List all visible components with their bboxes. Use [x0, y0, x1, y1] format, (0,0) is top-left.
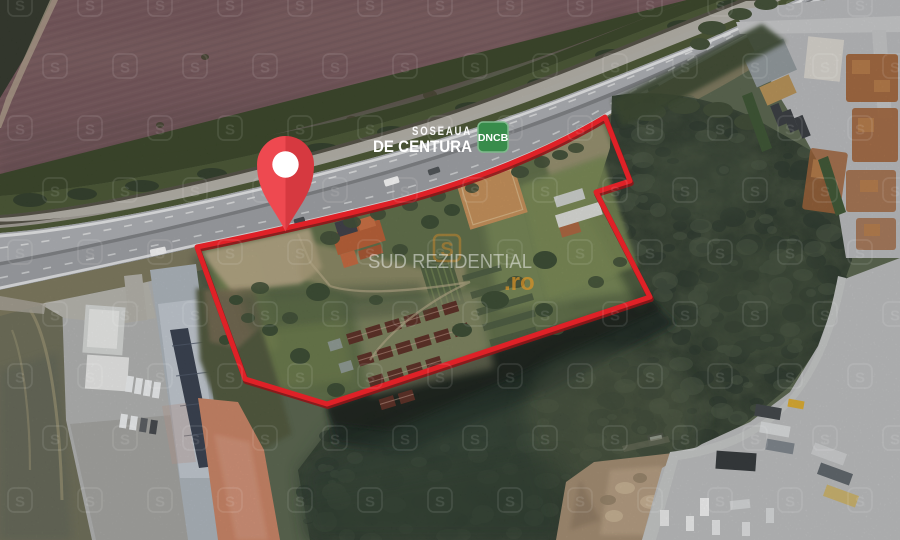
svg-text:S: S: [50, 432, 60, 449]
svg-text:.ro: .ro: [504, 269, 535, 296]
svg-text:S: S: [120, 432, 130, 449]
svg-text:S: S: [190, 184, 200, 201]
svg-text:S: S: [855, 246, 865, 263]
svg-text:S: S: [470, 184, 480, 201]
svg-text:S: S: [225, 122, 235, 139]
svg-text:S: S: [50, 308, 60, 325]
svg-text:S: S: [330, 308, 340, 325]
svg-text:S: S: [645, 370, 655, 387]
svg-text:S: S: [295, 0, 305, 15]
svg-text:S: S: [85, 494, 95, 511]
svg-text:S: S: [505, 0, 515, 15]
svg-text:S: S: [15, 494, 25, 511]
svg-text:S: S: [855, 494, 865, 511]
svg-text:S: S: [470, 60, 480, 77]
svg-text:S: S: [680, 432, 690, 449]
svg-text:S: S: [435, 494, 445, 511]
svg-text:S: S: [575, 122, 585, 139]
svg-text:S: S: [785, 0, 795, 15]
svg-text:S: S: [575, 0, 585, 15]
svg-text:S: S: [225, 494, 235, 511]
svg-text:S: S: [120, 184, 130, 201]
svg-text:S: S: [260, 308, 270, 325]
svg-text:S: S: [645, 246, 655, 263]
svg-text:S: S: [85, 122, 95, 139]
svg-text:S: S: [260, 432, 270, 449]
svg-text:S: S: [15, 122, 25, 139]
svg-text:S: S: [400, 60, 410, 77]
svg-text:S: S: [680, 184, 690, 201]
svg-text:S: S: [785, 122, 795, 139]
svg-text:S: S: [750, 184, 760, 201]
svg-text:S: S: [15, 0, 25, 15]
svg-text:S: S: [190, 60, 200, 77]
svg-text:S: S: [750, 308, 760, 325]
svg-text:DE CENTURA: DE CENTURA: [373, 137, 472, 156]
svg-text:S: S: [855, 122, 865, 139]
svg-text:S: S: [610, 60, 620, 77]
svg-text:S: S: [540, 308, 550, 325]
svg-text:S: S: [890, 308, 900, 325]
svg-text:S: S: [15, 370, 25, 387]
svg-text:S: S: [400, 184, 410, 201]
svg-text:S: S: [295, 370, 305, 387]
svg-text:S: S: [680, 308, 690, 325]
svg-text:S: S: [470, 308, 480, 325]
svg-text:S: S: [295, 122, 305, 139]
svg-text:S: S: [750, 432, 760, 449]
svg-text:S: S: [85, 0, 95, 15]
svg-text:S: S: [225, 0, 235, 15]
svg-text:S: S: [190, 308, 200, 325]
svg-text:S: S: [785, 370, 795, 387]
svg-text:S: S: [890, 60, 900, 77]
svg-text:S: S: [120, 60, 130, 77]
svg-text:S: S: [610, 184, 620, 201]
svg-text:S: S: [540, 184, 550, 201]
svg-text:S: S: [575, 494, 585, 511]
svg-text:S: S: [225, 246, 235, 263]
svg-text:DNCB: DNCB: [478, 132, 509, 144]
svg-text:S: S: [715, 122, 725, 139]
svg-text:S: S: [295, 246, 305, 263]
svg-text:S: S: [50, 184, 60, 201]
svg-text:S: S: [155, 370, 165, 387]
svg-text:S: S: [820, 308, 830, 325]
svg-text:S: S: [155, 0, 165, 15]
svg-text:S: S: [85, 246, 95, 263]
svg-text:S: S: [715, 494, 725, 511]
svg-text:S: S: [645, 0, 655, 15]
svg-text:S: S: [855, 0, 865, 15]
svg-text:S: S: [855, 370, 865, 387]
svg-text:S: S: [365, 122, 375, 139]
svg-text:S: S: [540, 432, 550, 449]
svg-text:S: S: [820, 60, 830, 77]
svg-text:S: S: [715, 0, 725, 15]
svg-text:S: S: [365, 370, 375, 387]
svg-text:S: S: [645, 122, 655, 139]
svg-text:S: S: [540, 60, 550, 77]
svg-text:S: S: [750, 60, 760, 77]
svg-text:S: S: [820, 432, 830, 449]
svg-text:S: S: [15, 246, 25, 263]
svg-text:S: S: [785, 494, 795, 511]
svg-text:S: S: [225, 370, 235, 387]
svg-text:S: S: [715, 246, 725, 263]
svg-text:S: S: [505, 494, 515, 511]
svg-text:S: S: [155, 494, 165, 511]
svg-text:S: S: [330, 60, 340, 77]
svg-text:S: S: [680, 60, 690, 77]
svg-text:S: S: [155, 246, 165, 263]
svg-text:S: S: [890, 184, 900, 201]
svg-text:S: S: [505, 370, 515, 387]
svg-text:S: S: [435, 0, 445, 15]
svg-text:S: S: [85, 370, 95, 387]
svg-text:S: S: [120, 308, 130, 325]
svg-text:S: S: [785, 246, 795, 263]
svg-text:S: S: [190, 432, 200, 449]
svg-text:S: S: [50, 60, 60, 77]
svg-text:S: S: [435, 370, 445, 387]
svg-text:S: S: [890, 432, 900, 449]
svg-text:S: S: [260, 60, 270, 77]
svg-text:S: S: [365, 0, 375, 15]
svg-text:S: S: [645, 494, 655, 511]
svg-text:S: S: [400, 432, 410, 449]
svg-text:S: S: [470, 432, 480, 449]
svg-text:S: S: [365, 494, 375, 511]
svg-text:S: S: [575, 370, 585, 387]
svg-text:S: S: [610, 432, 620, 449]
svg-text:S: S: [155, 122, 165, 139]
svg-text:S: S: [715, 370, 725, 387]
svg-text:S: S: [820, 184, 830, 201]
svg-text:S: S: [295, 494, 305, 511]
svg-text:S: S: [575, 246, 585, 263]
svg-text:S: S: [330, 432, 340, 449]
svg-text:S: S: [610, 308, 620, 325]
svg-text:S: S: [330, 184, 340, 201]
svg-text:S: S: [400, 308, 410, 325]
